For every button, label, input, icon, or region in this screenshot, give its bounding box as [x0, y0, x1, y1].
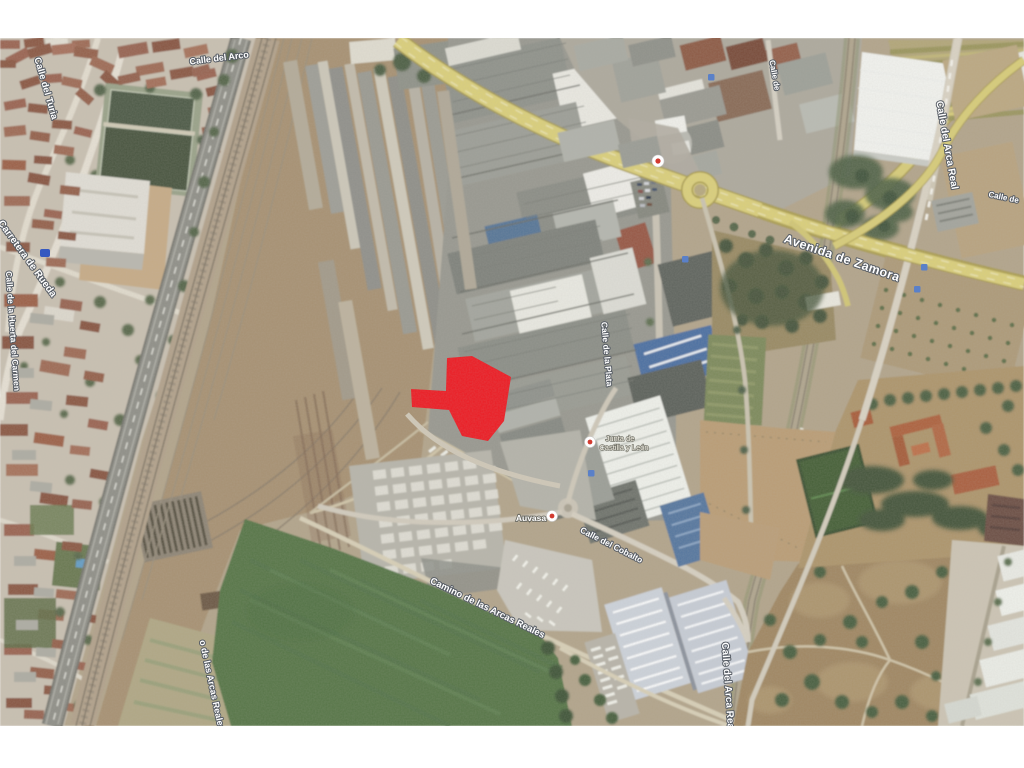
svg-text:Junta de: Junta de: [606, 434, 635, 443]
svg-text:Auvasa: Auvasa: [516, 513, 547, 523]
svg-text:Castilla y León: Castilla y León: [599, 443, 648, 452]
